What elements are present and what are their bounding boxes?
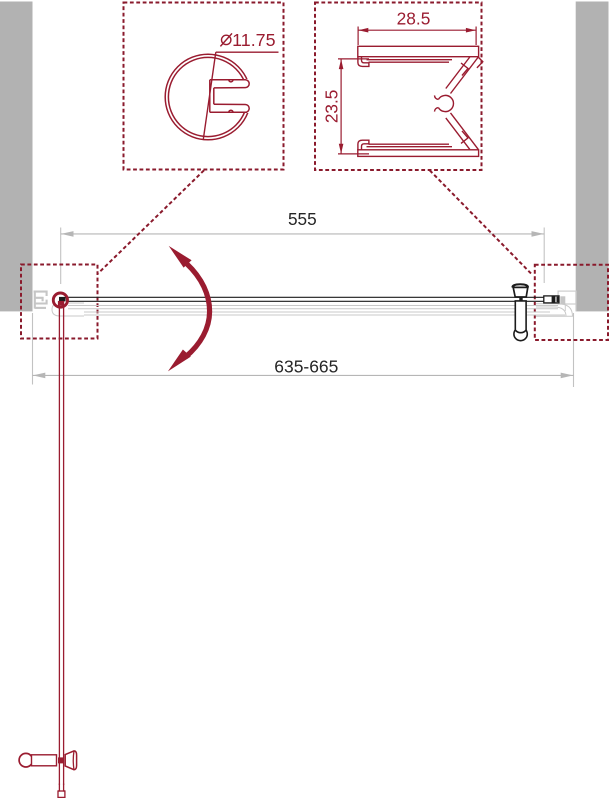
svg-text:23.5: 23.5 xyxy=(321,90,341,123)
svg-text:11.75: 11.75 xyxy=(232,30,275,50)
svg-text:28.5: 28.5 xyxy=(397,9,431,29)
svg-text:635-665: 635-665 xyxy=(274,357,338,377)
svg-text:555: 555 xyxy=(288,209,317,229)
